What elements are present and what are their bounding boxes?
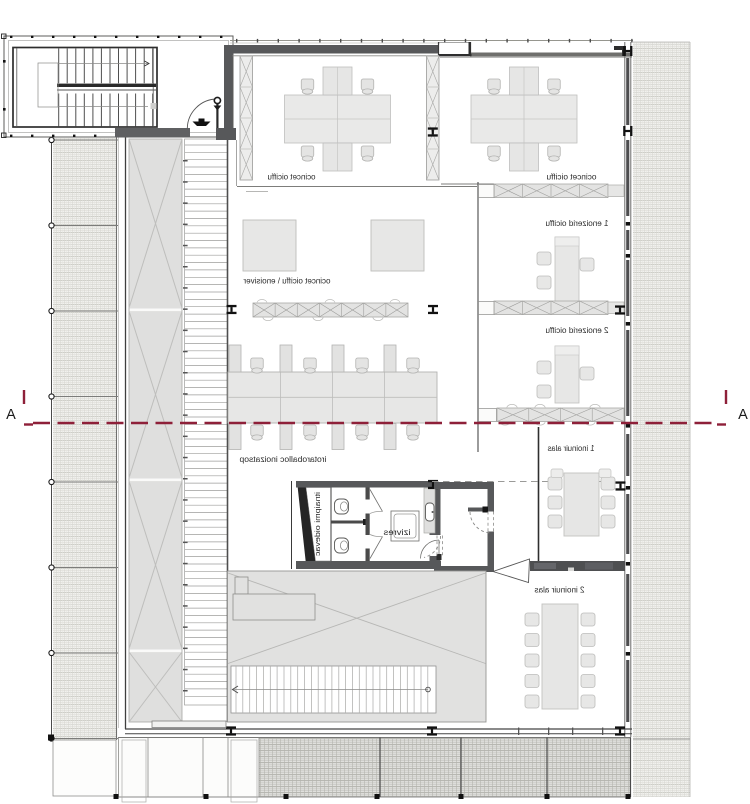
svg-text:izivres: izivres <box>384 528 411 537</box>
svg-text:ocincet oiciffu: ocincet oiciffu <box>546 173 596 182</box>
svg-text:ocincet oiciffu: ocincet oiciffu <box>267 173 315 182</box>
svg-text:A: A <box>738 407 748 423</box>
svg-text:itnaipmi oidevac: itnaipmi oidevac <box>313 492 322 556</box>
svg-text:2 inoinuir alas: 2 inoinuir alas <box>535 586 585 595</box>
svg-text:1 enoizerid oiciffu: 1 enoizerid oiciffu <box>545 219 608 228</box>
svg-text:irotaroballoc inoizatsop: irotaroballoc inoizatsop <box>239 455 326 464</box>
svg-text:1 inoinuir alas: 1 inoinuir alas <box>548 444 595 453</box>
svg-text:ocincet oiciffu \ enoisiver: ocincet oiciffu \ enoisiver <box>243 277 330 286</box>
svg-text:A: A <box>6 407 16 423</box>
svg-text:2 enoizerid oiciffu: 2 enoizerid oiciffu <box>545 326 608 335</box>
